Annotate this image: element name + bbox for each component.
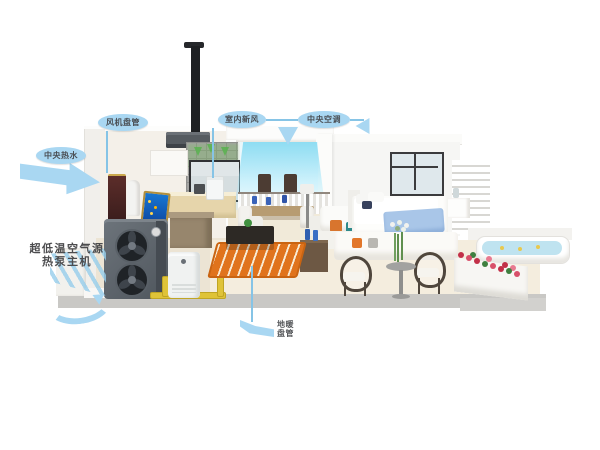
patio-chair-legs [344,282,366,296]
hydro-module-vents [172,284,196,293]
fresh-air-arrow-icon [221,147,229,156]
patio-chair-cushion [417,268,439,277]
fan-icon [116,264,148,296]
coffee-machine [194,184,205,194]
foundation-right-step [460,298,546,311]
bedroom-window-mullion-v [414,154,416,190]
blue-tableware [252,196,257,204]
bathtub-water [482,241,562,255]
upper-cabinet [150,150,188,176]
floor-heating-coil [207,242,307,278]
vase-blooms [390,222,395,227]
connector-fresh-air-central-ac [266,119,298,121]
bathtub-flower [500,246,504,250]
back-chair [258,174,271,194]
patio-table-base [392,294,410,299]
callout-fan-coil: 风机盘管 [98,114,148,131]
callout-central-ac: 中央空调 [298,111,350,128]
heat-pump-text-line2: 热泵主机 [12,255,122,268]
daybed-pillow-orange [352,238,362,248]
vase-stems [397,234,399,262]
kitchen-island [170,218,212,248]
floor-heating-text-line2: 盘管 [277,330,317,339]
floor-lamp [306,192,309,228]
exhaust-duct [191,46,200,136]
back-chair [284,174,297,194]
nightstand-vase [453,188,459,198]
heat-pump-text-line1: 超低温空气源 [12,242,122,255]
leader-fan-coil [106,131,108,173]
patio-chair-legs [418,278,440,294]
heat-pump-house-illustration: 中央热水 风机盘管 室内新风 中央空调 超低温空气源 热泵主机 地暖 盘管 [0,0,600,450]
bedroom-window [390,152,444,196]
flower-bed [458,252,464,258]
patio-table-stem [399,270,403,296]
coffee-table [226,226,274,244]
central-ac-right-line [350,119,364,121]
callout-floor-heating-text: 地暖 盘管 [277,321,317,338]
floor-heating-arrow-icon [240,320,274,337]
blue-bottles [305,229,310,240]
hot-water-tank [127,180,140,216]
central-ac-pointer-icon [278,127,298,145]
hydro-module-logo [181,259,186,264]
daybed-pillow-gray [368,238,378,248]
callout-central-ac-label: 中央空调 [307,114,341,125]
bedroom-window-mullion-h [392,166,438,168]
floor-lamp-shade [300,184,314,194]
callout-hot-water: 中央热水 [36,147,86,164]
leader-floor-heating [251,266,253,322]
aquarium-fish [148,200,151,203]
wall-hung-device [206,176,224,200]
patio-chair-cushion [343,272,365,281]
bed-accent-pillow [362,201,372,209]
callout-hot-water-label: 中央热水 [44,150,78,161]
fresh-air-arrow-icon [194,147,202,156]
callout-fresh-air: 室内新风 [218,111,266,128]
nightstand [448,198,470,218]
callout-heat-pump-text: 超低温空气源 热泵主机 [12,242,122,268]
floor-standing-fan-coil [108,174,126,222]
callout-fan-coil-label: 风机盘管 [106,117,140,128]
leader-fresh-air [212,128,214,178]
callout-fresh-air-label: 室内新风 [225,114,259,125]
coffee-table-plant [244,219,252,227]
